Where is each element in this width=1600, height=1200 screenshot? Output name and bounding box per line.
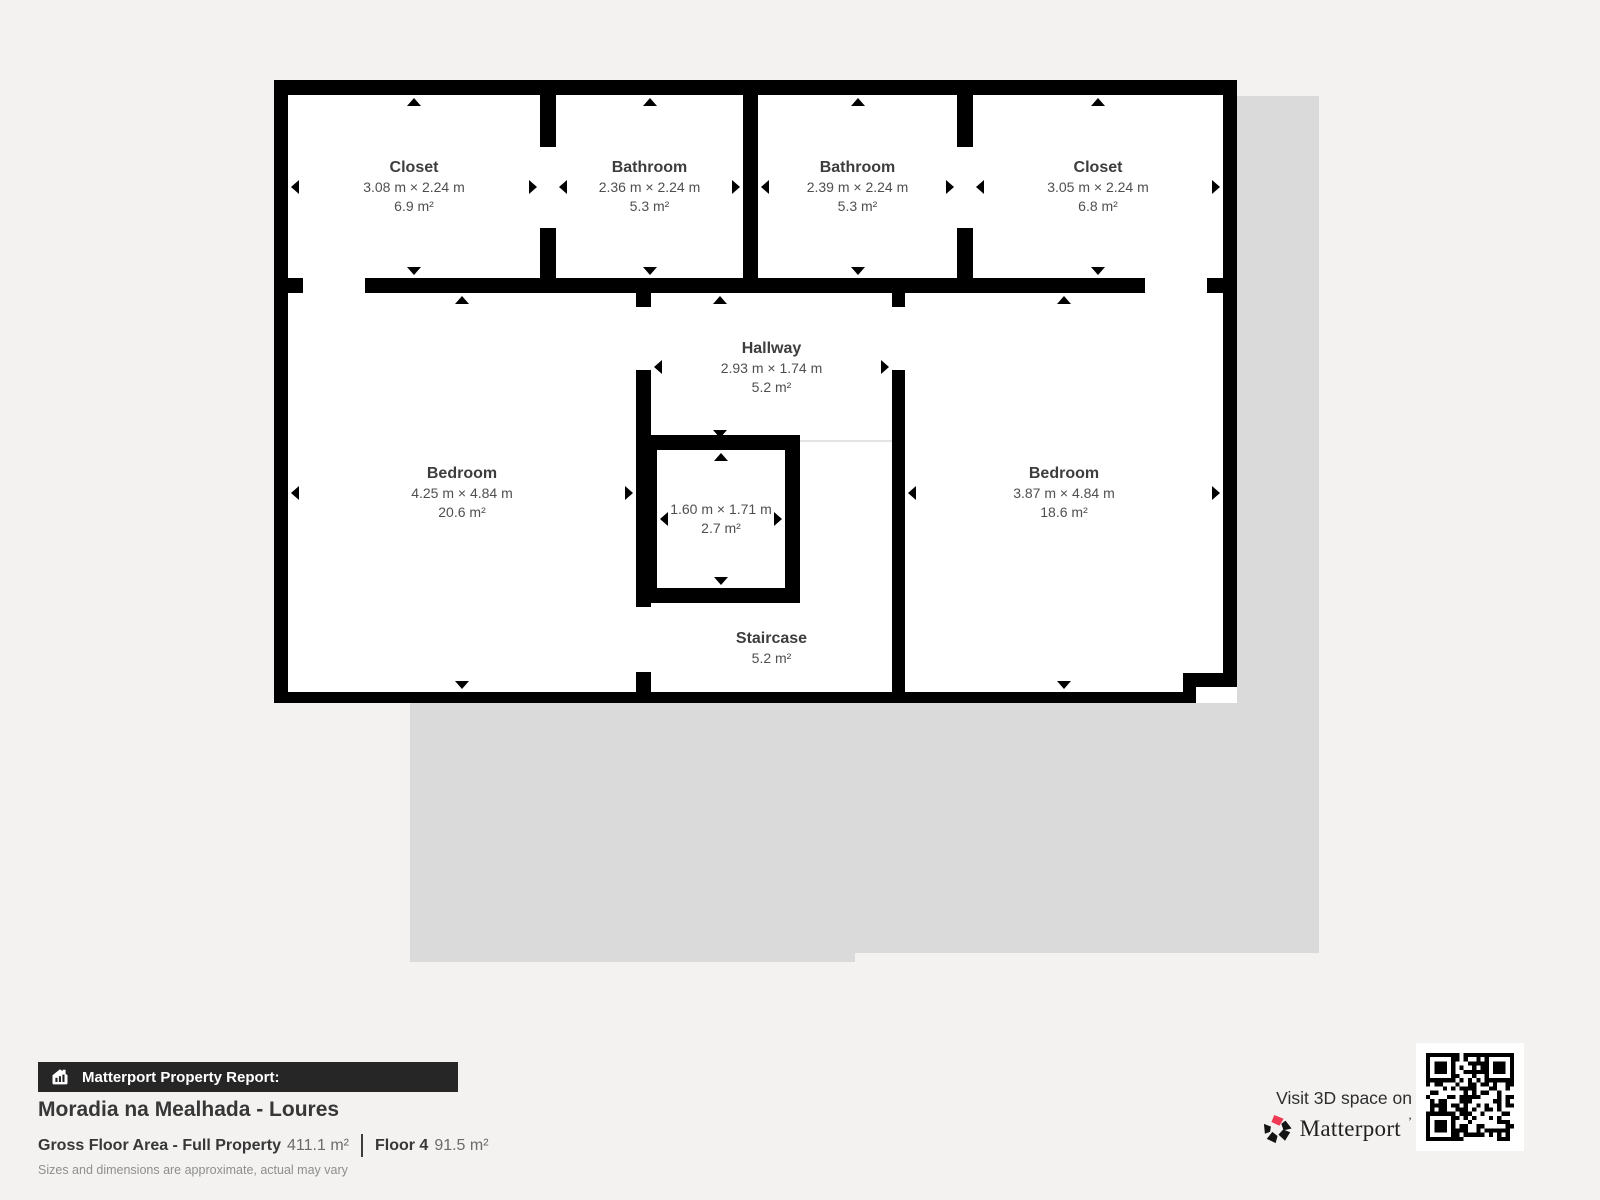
dimension-arrow-right-icon	[1212, 486, 1220, 500]
dimension-arrow-left-icon	[291, 486, 299, 500]
room-label: Bathroom	[612, 157, 688, 178]
dimension-arrow-left-icon	[654, 360, 662, 374]
room-label: Bedroom	[427, 463, 497, 484]
room-label: Closet	[1074, 157, 1123, 178]
room-area: 6.9 m²	[394, 197, 434, 216]
disclaimer-text: Sizes and dimensions are approximate, ac…	[38, 1163, 348, 1177]
room-area: 5.3 m²	[630, 197, 670, 216]
dimension-arrow-up-icon	[713, 296, 727, 304]
dimension-arrow-up-icon	[407, 98, 421, 106]
dimension-arrow-up-icon	[643, 98, 657, 106]
lower-floor-silhouette-step	[410, 953, 855, 962]
room-closet-left: Closet 3.08 m × 2.24 m 6.9 m²	[288, 95, 540, 278]
report-badge-label: Matterport Property Report:	[82, 1069, 280, 1086]
gross-floor-label: Gross Floor Area - Full Property	[38, 1137, 281, 1155]
dimension-arrow-up-icon	[1057, 296, 1071, 304]
room-label: Hallway	[742, 338, 802, 359]
report-badge: Matterport Property Report:	[38, 1062, 458, 1092]
dimension-arrow-left-icon	[660, 512, 668, 526]
dimension-arrow-up-icon	[714, 453, 728, 461]
dimension-arrow-right-icon	[529, 180, 537, 194]
room-area: 5.3 m²	[838, 197, 878, 216]
small-closet-enclosure: 1.60 m × 1.71 m 2.7 m²	[642, 435, 800, 603]
room-label: Bedroom	[1029, 463, 1099, 484]
door-opening	[635, 307, 652, 370]
dimension-arrow-left-icon	[291, 180, 299, 194]
room-bathroom-right: Bathroom 2.39 m × 2.24 m 5.3 m²	[758, 95, 957, 278]
gross-floor-value: 411.1 m²	[287, 1137, 349, 1155]
dimension-arrow-left-icon	[559, 180, 567, 194]
room-dimensions: 3.05 m × 2.24 m	[1047, 178, 1149, 197]
visit-3d-text: Visit 3D space on	[1263, 1088, 1412, 1109]
room-staircase: Staircase 5.2 m²	[651, 603, 892, 692]
dimension-arrow-right-icon	[946, 180, 954, 194]
dimension-arrow-left-icon	[761, 180, 769, 194]
room-closet-right: Closet 3.05 m × 2.24 m 6.8 m²	[973, 95, 1223, 278]
door-opening	[1145, 277, 1207, 294]
room-bedroom-left: Bedroom 4.25 m × 4.84 m 20.6 m²	[288, 293, 636, 692]
dimension-arrow-down-icon	[714, 577, 728, 585]
dimension-arrow-up-icon	[851, 98, 865, 106]
room-closet-small: 1.60 m × 1.71 m 2.7 m²	[657, 450, 785, 588]
matterport-trademark: ’	[1408, 1114, 1412, 1128]
dimension-arrow-right-icon	[732, 180, 740, 194]
dimension-arrow-left-icon	[908, 486, 916, 500]
room-area: 20.6 m²	[438, 503, 485, 522]
notch-cutout	[1196, 687, 1237, 703]
report-stats: Gross Floor Area - Full Property 411.1 m…	[38, 1134, 489, 1157]
room-dimensions: 1.60 m × 1.71 m	[670, 500, 772, 519]
room-label: Staircase	[736, 628, 807, 649]
dimension-arrow-down-icon	[407, 267, 421, 275]
hallway-boundary-line	[800, 440, 892, 442]
dimension-arrow-right-icon	[1212, 180, 1220, 194]
property-title: Moradia na Mealhada - Loures	[38, 1098, 339, 1122]
dimension-arrow-up-icon	[455, 296, 469, 304]
room-dimensions: 3.08 m × 2.24 m	[363, 178, 465, 197]
matterport-pinwheel-icon	[1263, 1114, 1293, 1144]
matterport-wordmark: Matterport	[1300, 1114, 1401, 1144]
visit-3d-cta: Visit 3D space on Matterport ’	[1263, 1088, 1412, 1149]
room-dimensions: 2.39 m × 2.24 m	[807, 178, 909, 197]
room-area: 18.6 m²	[1040, 503, 1087, 522]
room-dimensions: 2.93 m × 1.74 m	[721, 359, 823, 378]
door-opening	[635, 607, 652, 672]
dimension-arrow-right-icon	[881, 360, 889, 374]
room-dimensions: 2.36 m × 2.24 m	[599, 178, 701, 197]
dimension-arrow-up-icon	[1091, 98, 1105, 106]
qr-code-box	[1416, 1043, 1524, 1151]
matterport-logo: Matterport ’	[1263, 1114, 1412, 1144]
dimension-arrow-down-icon	[455, 681, 469, 689]
notch-wall	[1183, 673, 1196, 703]
dimension-arrow-down-icon	[1091, 267, 1105, 275]
room-dimensions: 3.87 m × 4.84 m	[1013, 484, 1115, 503]
qr-code	[1426, 1053, 1514, 1141]
dimension-arrow-left-icon	[976, 180, 984, 194]
room-hallway: Hallway 2.93 m × 1.74 m 5.2 m²	[651, 293, 892, 441]
room-area: 2.7 m²	[701, 519, 741, 538]
room-bedroom-right: Bedroom 3.87 m × 4.84 m 18.6 m²	[905, 293, 1223, 692]
door-opening	[303, 277, 365, 294]
door-opening	[891, 307, 906, 370]
dimension-arrow-down-icon	[851, 267, 865, 275]
room-bathroom-left: Bathroom 2.36 m × 2.24 m 5.3 m²	[556, 95, 743, 278]
property-report-page: Closet 3.08 m × 2.24 m 6.9 m² Bathroom 2…	[0, 0, 1600, 1200]
room-area: 5.2 m²	[752, 649, 792, 668]
house-chart-icon	[50, 1067, 70, 1087]
room-dimensions: 4.25 m × 4.84 m	[411, 484, 513, 503]
dimension-arrow-right-icon	[625, 486, 633, 500]
dimension-arrow-down-icon	[1057, 681, 1071, 689]
floor-label: Floor 4	[375, 1137, 428, 1155]
room-area: 5.2 m²	[752, 378, 792, 397]
door-opening	[956, 147, 974, 228]
stats-divider	[361, 1134, 363, 1157]
dimension-arrow-right-icon	[774, 512, 782, 526]
dimension-arrow-down-icon	[643, 267, 657, 275]
room-area: 6.8 m²	[1078, 197, 1118, 216]
door-opening	[539, 147, 557, 228]
room-label: Bathroom	[820, 157, 896, 178]
floorplan: Closet 3.08 m × 2.24 m 6.9 m² Bathroom 2…	[274, 80, 1237, 703]
room-label: Closet	[390, 157, 439, 178]
floor-value: 91.5 m²	[434, 1137, 488, 1155]
